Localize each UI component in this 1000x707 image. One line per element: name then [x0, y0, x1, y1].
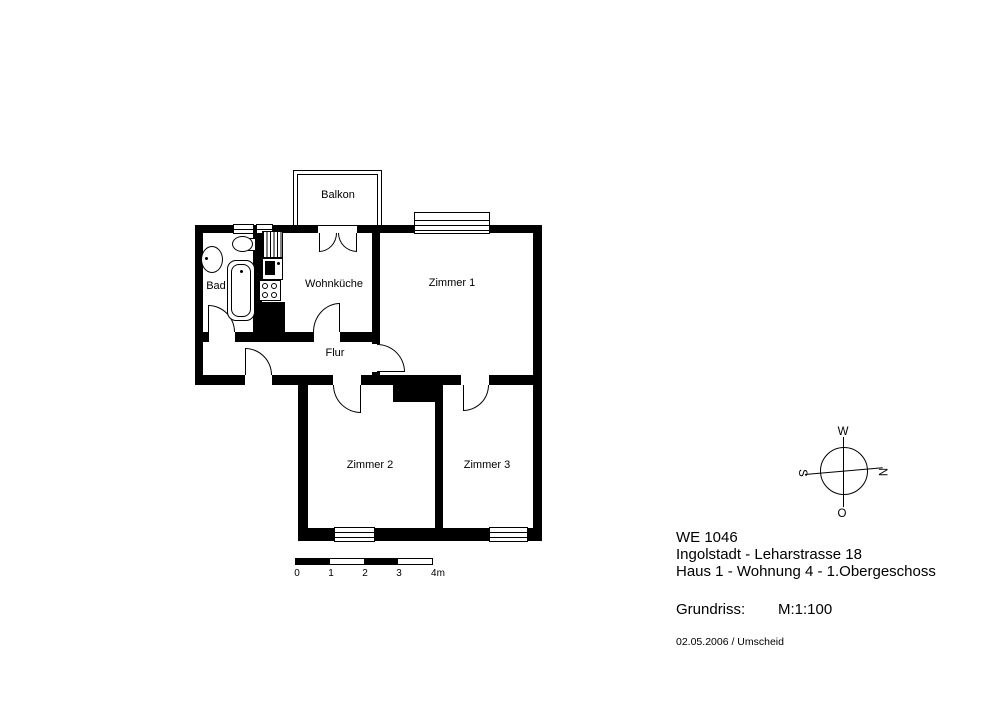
door-zimmer3 — [463, 385, 489, 411]
stove-burner-4 — [271, 292, 277, 298]
scale-num-0: 0 — [294, 568, 300, 579]
balcony-door-opening — [318, 226, 357, 233]
door-wohnkueche — [313, 303, 340, 332]
scale-bar-segment-1 — [296, 559, 330, 564]
room-label-flur: Flur — [326, 347, 345, 359]
scale-num-2: 2 — [362, 568, 368, 579]
wall-zimmer2-north-a — [308, 375, 333, 385]
date-author: 02.05.2006 / Umscheid — [676, 634, 936, 651]
wall-bad-south-b — [235, 332, 314, 342]
window-zimmer1 — [414, 212, 490, 234]
room-label-bad: Bad — [206, 280, 226, 292]
compass-letter-s: S — [796, 469, 808, 477]
door-balcony-right — [338, 233, 357, 252]
room-label-zimmer1: Zimmer 1 — [429, 277, 475, 289]
door-balcony-left — [319, 233, 337, 252]
scale-bar-segment-3 — [364, 559, 398, 564]
window-zimmer3 — [489, 527, 528, 542]
wall-right — [533, 225, 542, 541]
basin-faucet-dot — [205, 257, 208, 260]
plan-type-label: Grundriss: — [676, 601, 745, 618]
kitchen-counter — [262, 231, 283, 258]
apartment-id: WE 1046 — [676, 529, 936, 546]
plan-scale-value: M:1:100 — [778, 601, 832, 618]
window-bad — [233, 224, 254, 234]
door-zimmer1 — [377, 344, 405, 372]
wall-zimmer2-west — [298, 375, 308, 541]
scale-bar — [295, 558, 433, 565]
wall-zimmer2-north-b — [361, 375, 461, 385]
wall-bad-south-a — [195, 332, 209, 342]
compass-letter-w: W — [838, 426, 849, 438]
wall-left — [195, 225, 203, 385]
wall-kitchen-block — [253, 302, 285, 333]
room-label-balkon: Balkon — [321, 189, 355, 201]
floor-plan-sheet: Balkon Bad Wohnküche Zimmer 1 Flur Zimme… — [0, 0, 1000, 707]
compass-letter-o: O — [838, 508, 847, 520]
compass-letter-n: N — [876, 468, 888, 476]
stove-burner-2 — [271, 283, 277, 289]
room-label-zimmer2: Zimmer 2 — [347, 459, 393, 471]
wall-flur-south-a — [195, 375, 245, 385]
room-label-zimmer3: Zimmer 3 — [464, 459, 510, 471]
scale-num-1: 1 — [328, 568, 334, 579]
window-zimmer2 — [334, 527, 375, 542]
wash-basin — [201, 246, 223, 273]
address-line: Ingolstadt - Leharstrasse 18 — [676, 546, 936, 563]
unit-line: Haus 1 - Wohnung 4 - 1.Obergeschoss — [676, 563, 936, 580]
stove-burner-1 — [262, 283, 268, 289]
kitchen-faucet-dot — [277, 262, 280, 265]
bathtub-drain-dot — [240, 270, 243, 273]
kitchen-sink-basin — [265, 261, 275, 275]
stove-burner-3 — [262, 292, 268, 298]
scale-num-4m: 4m — [431, 568, 445, 579]
toilet-bowl — [232, 236, 253, 252]
wall-zimmer2-zimmer3 — [435, 385, 443, 528]
room-label-wohnkueche: Wohnküche — [305, 278, 363, 290]
compass: W O S N — [790, 425, 900, 525]
door-zimmer2 — [333, 385, 361, 413]
compass-axis-vertical — [843, 437, 844, 507]
wall-zimmer1-west — [372, 233, 380, 344]
door-entrance — [245, 348, 272, 375]
scale-num-3: 3 — [396, 568, 402, 579]
title-block: WE 1046 Ingolstadt - Leharstrasse 18 Hau… — [676, 529, 936, 651]
